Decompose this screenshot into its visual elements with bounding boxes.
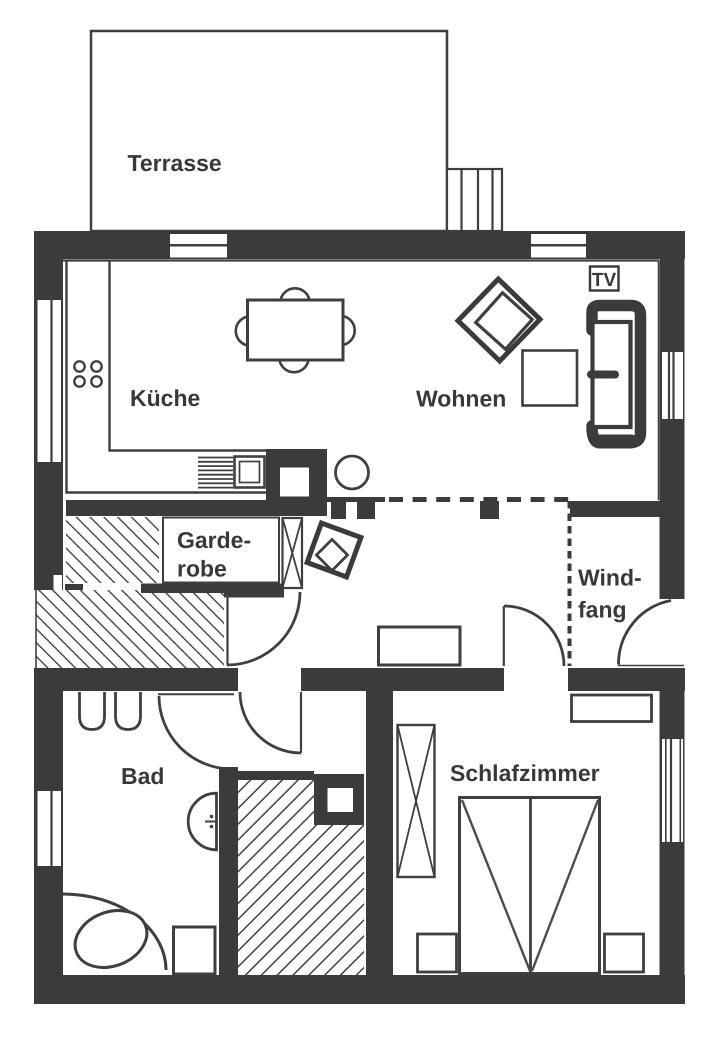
svg-text:Wind-: Wind- xyxy=(578,565,642,591)
svg-text:Garde-: Garde- xyxy=(177,527,251,553)
svg-text:fang: fang xyxy=(578,597,627,623)
svg-text:robe: robe xyxy=(177,556,227,582)
svg-text:TV: TV xyxy=(592,270,617,291)
svg-text:Wohnen: Wohnen xyxy=(416,386,506,412)
svg-text:Schlafzimmer: Schlafzimmer xyxy=(450,760,600,786)
svg-text:Bad: Bad xyxy=(121,763,164,789)
svg-text:Küche: Küche xyxy=(130,385,200,411)
svg-text:Terrasse: Terrasse xyxy=(128,150,222,176)
